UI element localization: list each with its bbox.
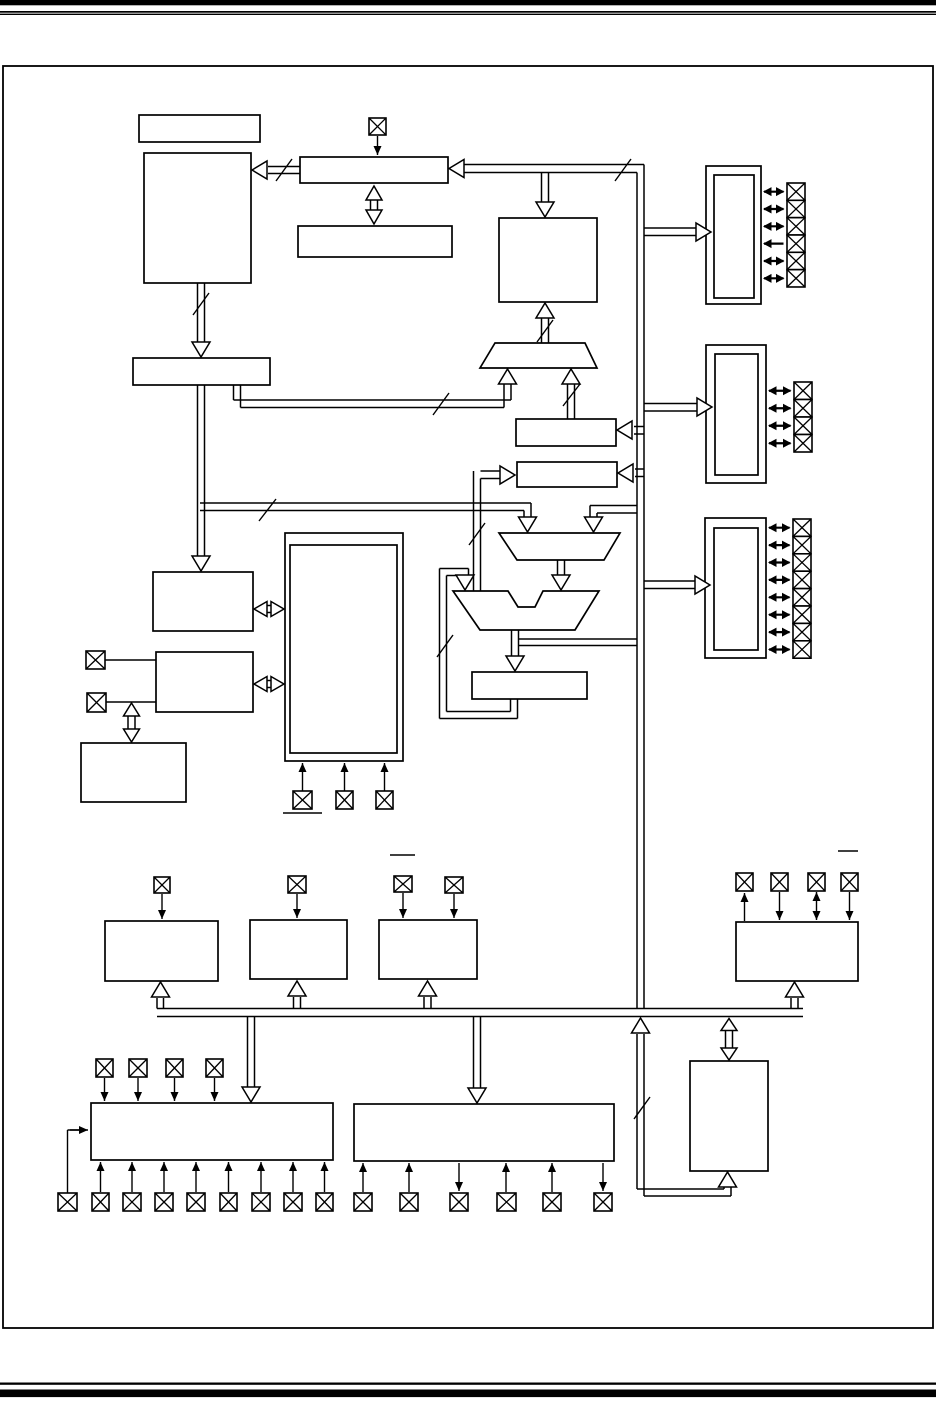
pin-arrow [128,1162,136,1192]
port-pin-arrow [763,187,785,196]
bus-into-box-c [419,981,437,996]
bus-into-box-d [786,982,804,997]
box-c-pin-2 [445,877,463,893]
datasheet-page [0,0,936,1412]
bl-bottom-pin-3 [123,1193,141,1211]
pin-arrow [293,894,301,918]
pin-arrow [101,1078,109,1101]
reset-block-inner [290,545,397,753]
w-register-box [472,672,587,699]
arrow-into-alu-mux-right [585,517,603,532]
pc-stack-arrow-up [366,186,382,200]
port-1-pins-pin [787,218,805,235]
pin-arrow [97,1162,105,1192]
port-3-pins-pin [793,606,811,623]
pin-arrow [289,1162,297,1192]
oscillator-box [81,743,186,802]
port-2-inner [715,354,758,475]
alu-mux-trapezoid [499,533,620,560]
bus-into-box-b [288,981,306,996]
pin-arrow [450,894,458,918]
pin-arrow [405,1163,413,1192]
wire [276,159,292,181]
arrow-into-status-right [618,464,633,482]
pin-arrow [134,1078,142,1101]
port-2-pins-pin [794,417,812,435]
port-3-pins-pin [793,589,811,606]
port-pin-arrow [768,558,791,567]
mclr-pin [293,791,312,809]
port-1-inner [714,175,754,298]
pin-arrow [455,1163,463,1191]
ram-box [499,218,597,302]
pin-arrow [776,892,784,920]
eeprom-bidir-down [721,1048,737,1060]
arrow-into-program-counter [449,160,464,178]
box-c-pin-1 [394,876,412,892]
bottom-peripheral-right [354,1104,614,1161]
box-a-pin [154,877,170,893]
port-1-pins-pin [787,270,805,287]
bl-top-pin-1 [96,1059,113,1077]
port-1-pins-pin [787,200,805,217]
port-3-pins-pin [793,536,811,553]
port-3-inner [714,528,758,650]
pin-arrow [374,136,382,155]
bl-bottom-pin-2 [92,1193,109,1211]
decode-bidir-left [254,602,267,617]
osc2-pin [87,693,106,712]
lower-bus-up-arrow [632,1018,650,1033]
bl-bottom-pin-8 [284,1193,302,1211]
vss-pin [376,791,393,809]
port-1-pins-pin [787,183,805,200]
arrow-into-eeprom-bottom [719,1172,737,1187]
pin-arrow [257,1162,265,1192]
fsr-register-box [516,419,616,446]
timing-generation-box [156,652,253,712]
clock-pin [369,118,386,135]
port-3-pins-pin [793,519,811,536]
port-pin-arrow [768,523,791,532]
pin-arrow [192,1162,200,1192]
bl-top-pin-3 [166,1059,183,1077]
wire [563,384,580,406]
arrow-into-addr-mux-left [499,369,517,384]
peripheral-box-b [250,920,347,979]
pin-arrow [399,893,407,918]
wire [193,293,209,315]
vdd-pin [336,791,353,809]
decode-bidir-right [271,602,284,617]
arrow-into-program-memory [252,161,267,179]
title-box [139,115,260,142]
arrow-into-addr-mux-right [562,369,580,384]
bus-into-bottom-right [468,1088,486,1103]
port-1-pins [763,183,805,287]
port-pin-arrow [763,274,785,283]
arrow-into-ram-top [536,202,554,217]
port-2-pins-pin [794,435,812,453]
arrow-into-alu-mux-left [519,517,537,532]
addr-mux-trapezoid [480,343,597,368]
port-2-pins-pin [794,382,812,400]
timing-osc-bidir-up [124,703,140,716]
bus-into-box-a [152,982,170,997]
wire [537,320,553,342]
port-pin-arrow [768,404,792,413]
program-memory-box [144,153,251,283]
footer-rule-thick [0,1390,936,1398]
arrow-into-instruction-decode [192,556,210,571]
instruction-register-box [133,358,270,385]
block-diagram [0,0,936,1412]
pin-arrow [158,894,166,919]
footer-rule-thin [0,1383,936,1385]
port-3-pins-pin [793,641,811,658]
port-3-pins-pin [793,571,811,588]
port-2-pins-pin [794,400,812,418]
br-bottom-pin-4 [497,1193,516,1211]
pin-arrow [321,1162,329,1192]
port-pin-arrow [763,239,784,248]
port-pin-arrow [768,421,792,430]
pin-arrow [299,763,307,791]
peripheral-box-c [379,920,477,979]
port-pin-arrow [763,222,785,231]
port-3-pins-pin [793,623,811,640]
port-pin-arrow [768,645,791,654]
eeprom-bidir-up [721,1019,737,1031]
bus-into-bottom-left [242,1087,260,1102]
header-rule-thick [0,0,936,5]
pin-arrow [381,763,389,791]
arrow-into-ram-bottom [536,303,554,318]
program-counter-box [300,157,448,183]
pin-arrow [160,1162,168,1192]
alu-shape [453,591,599,630]
pin-arrow [502,1163,510,1192]
wire [615,159,631,181]
pin-arrow [813,892,821,920]
header-rule-thin-1 [0,11,936,13]
wire [433,393,449,415]
br-bottom-pin-1 [354,1193,372,1211]
timing-bidir-right [271,677,284,692]
pin-arrow [846,892,854,920]
pin-arrow [741,893,749,921]
port-1-pins-pin [787,252,805,269]
pin-arrow [548,1163,556,1192]
port-pin-arrow [763,204,785,213]
pin-arrow [341,763,349,791]
bl-bottom-pin-5 [187,1193,205,1211]
timing-osc-bidir-down [124,729,140,742]
br-bottom-pin-6 [594,1193,612,1211]
arrow-into-status-left [500,466,515,484]
pin-arrow [225,1162,233,1192]
bl-bottom-pin-9 [316,1193,333,1211]
br-bottom-pin-2 [400,1193,418,1211]
port-pin-arrow [768,628,791,637]
peripheral-box-a [105,921,218,981]
pin-arrow [171,1078,179,1101]
port-pin-arrow [768,593,791,602]
blocks-layer [81,115,858,1171]
port-pin-arrow [763,256,785,265]
box-d-pin-4 [841,873,858,891]
pin-arrow [211,1078,219,1101]
data-eeprom-box [690,1061,768,1171]
pc-stack-arrow-down [366,210,382,224]
osc1-pin [86,651,105,669]
box-d-pin-3 [808,873,825,891]
port-pin-arrow [768,541,791,550]
stack-box [298,226,452,257]
port-pin-arrow [768,439,792,448]
port-pin-arrow [768,386,792,395]
bl-bottom-pin-4 [155,1193,173,1211]
bl-top-pin-4 [206,1059,223,1077]
br-bottom-pin-3 [450,1193,468,1211]
port-pin-arrow [768,610,791,619]
bl-bottom-pin-1 [58,1193,77,1211]
bl-bottom-pin-6 [220,1193,237,1211]
box-d-pin-1 [736,873,753,891]
pin-arrow [70,1126,88,1134]
arrow-into-instruction-register [192,342,210,357]
arrow-alu-into-w [506,656,524,671]
box-b-pin [288,876,306,893]
bl-bottom-pin-7 [252,1193,270,1211]
port-pin-arrow [768,575,791,584]
bottom-peripheral-left [91,1103,333,1160]
wire [469,523,485,545]
port-2-pins [768,382,812,452]
timing-bidir-left [254,677,267,692]
arrow-mux-into-alu [552,575,570,590]
peripheral-box-d [736,922,858,981]
bl-top-pin-2 [129,1059,147,1077]
box-d-pin-2 [771,873,788,891]
pin-arrow [359,1163,367,1192]
instruction-decode-box [153,572,253,631]
port-1-pins-pin [787,235,805,252]
port-3-pins-pin [793,554,811,571]
status-register-box [517,462,617,487]
port-3-pins [768,519,811,658]
arrow-into-fsr [617,421,632,439]
pin-arrow [599,1163,607,1191]
br-bottom-pin-5 [543,1193,561,1211]
arrow-w-into-alu [456,575,474,590]
header-rule-thin-2 [0,14,936,15]
